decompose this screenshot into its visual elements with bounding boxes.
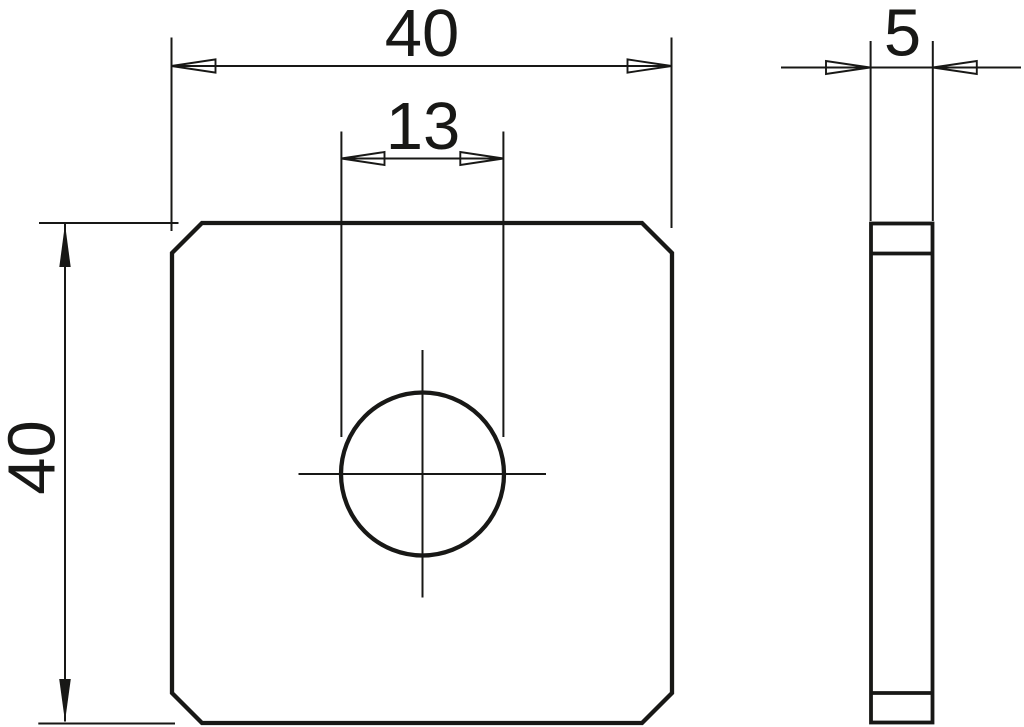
svg-text:40: 40 (385, 0, 460, 71)
svg-text:13: 13 (386, 89, 461, 164)
svg-text:5: 5 (884, 0, 921, 71)
svg-text:40: 40 (0, 420, 70, 495)
